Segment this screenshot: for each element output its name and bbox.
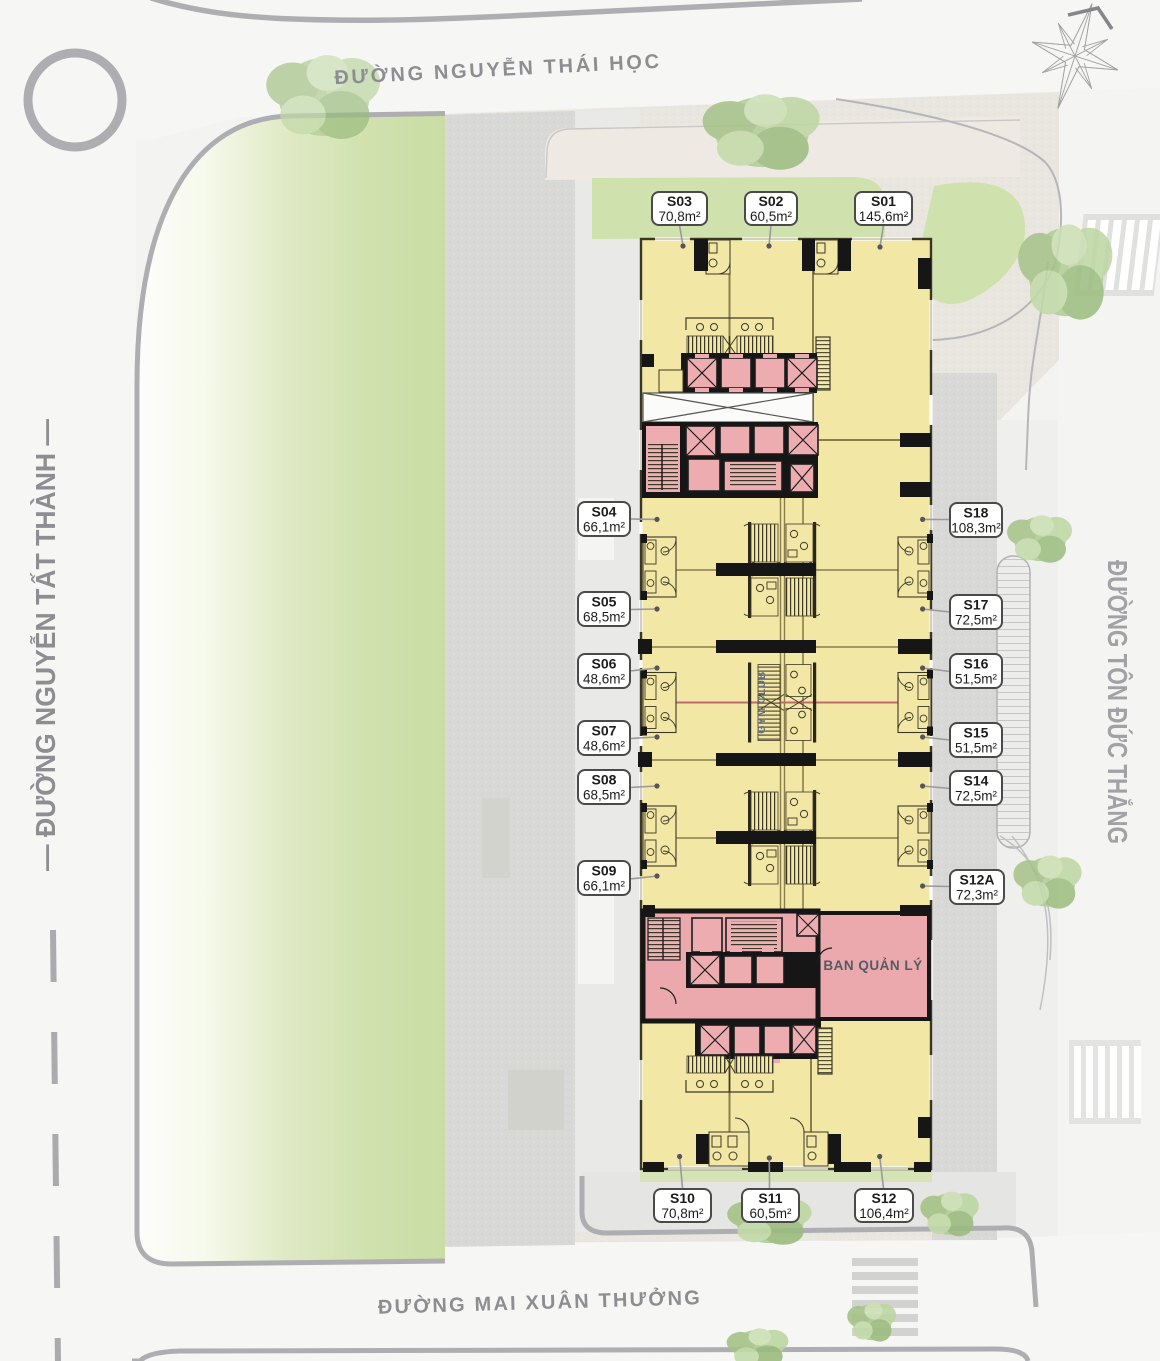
svg-text:S04: S04 [592,504,617,520]
svg-text:S02: S02 [759,193,784,209]
svg-text:66,1m²: 66,1m² [583,520,626,535]
svg-text:S05: S05 [592,594,617,610]
svg-text:S09: S09 [592,863,617,879]
svg-text:S15: S15 [964,725,989,741]
svg-text:S18: S18 [964,505,989,521]
svg-text:72,5m²: 72,5m² [955,613,998,628]
svg-text:68,5m²: 68,5m² [583,610,626,625]
svg-text:S03: S03 [667,193,692,209]
svg-text:S07: S07 [592,723,617,739]
svg-text:145,6m²: 145,6m² [859,209,909,224]
svg-text:— ĐƯỜNG NGUYỄN TẤT THÀNH —: — ĐƯỜNG NGUYỄN TẤT THÀNH — [30,419,61,871]
svg-text:GYM CLUB: GYM CLUB [756,671,768,734]
svg-text:S14: S14 [964,773,989,789]
svg-text:51,5m²: 51,5m² [955,672,998,687]
svg-text:68,5m²: 68,5m² [583,788,626,803]
svg-text:S16: S16 [964,656,989,672]
svg-text:S10: S10 [670,1190,695,1206]
svg-text:S11: S11 [758,1190,782,1206]
svg-text:ĐƯỜNG TÔN ĐỨC THẮNG: ĐƯỜNG TÔN ĐỨC THẮNG [1102,560,1134,844]
svg-text:60,5m²: 60,5m² [750,209,793,224]
svg-text:51,5m²: 51,5m² [955,741,998,756]
svg-text:S06: S06 [592,656,617,672]
svg-text:BAN QUẢN LÝ: BAN QUẢN LÝ [823,958,922,973]
svg-text:66,1m²: 66,1m² [583,879,626,894]
svg-text:48,6m²: 48,6m² [583,739,626,754]
svg-text:106,4m²: 106,4m² [859,1206,909,1221]
svg-text:48,6m²: 48,6m² [583,672,626,687]
svg-text:72,5m²: 72,5m² [955,789,998,804]
svg-text:S01: S01 [871,193,896,209]
svg-text:S12A: S12A [959,872,994,888]
svg-text:S12: S12 [872,1190,897,1206]
svg-text:108,3m²: 108,3m² [951,521,1001,536]
svg-text:70,8m²: 70,8m² [661,1206,704,1221]
svg-text:S08: S08 [592,772,617,788]
svg-text:60,5m²: 60,5m² [749,1206,792,1221]
svg-text:72,3m²: 72,3m² [956,888,999,903]
svg-text:70,8m²: 70,8m² [658,209,701,224]
svg-text:S17: S17 [964,597,989,613]
